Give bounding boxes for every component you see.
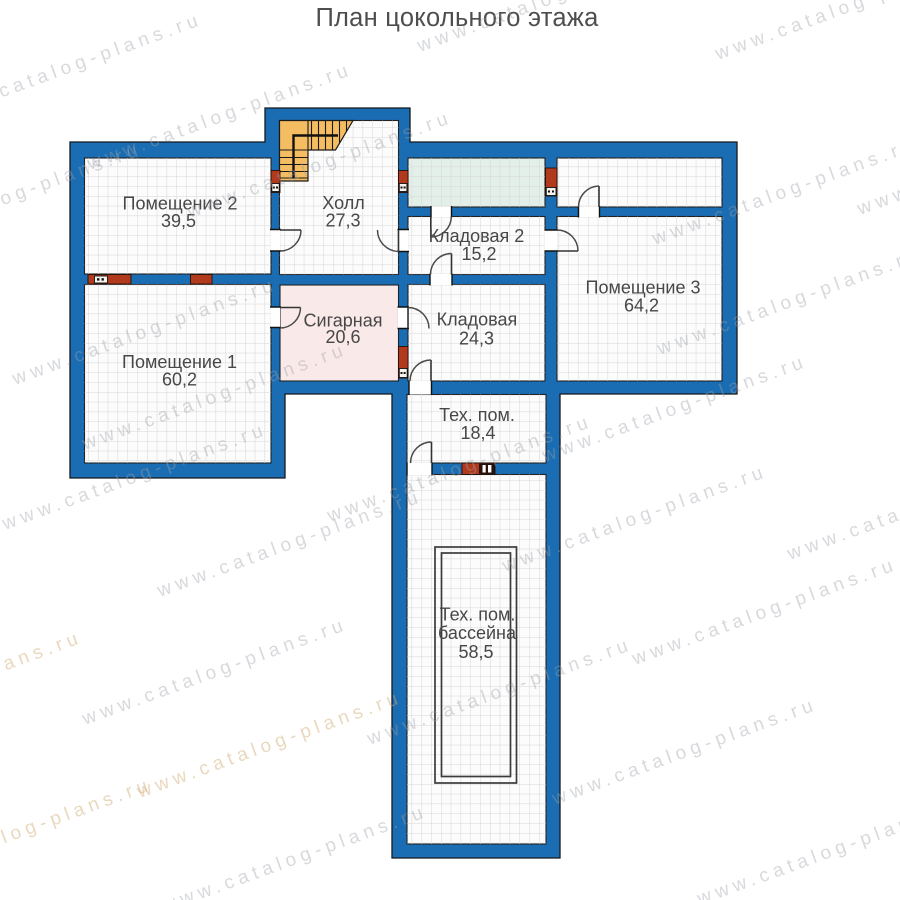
svg-text:Кладовая: Кладовая — [437, 309, 518, 329]
svg-text:15,2: 15,2 — [461, 244, 496, 264]
svg-text:Кладовая 2: Кладовая 2 — [429, 226, 525, 246]
svg-text:www.catalog-plans.ru: www.catalog-plans.ru — [694, 794, 900, 900]
svg-text:www.catalog-plans.ru: www.catalog-plans.ru — [79, 614, 351, 730]
svg-text:www.catalog-plans.ru: www.catalog-plans.ru — [0, 627, 85, 743]
svg-text:www.catalog-plans.ru: www.catalog-plans.ru — [712, 0, 900, 65]
svg-text:24,3: 24,3 — [459, 329, 494, 349]
svg-text:www.catalog-plans.ru: www.catalog-plans.ru — [0, 774, 155, 890]
svg-text:64,2: 64,2 — [624, 296, 659, 316]
svg-text:бассейна: бассейна — [438, 623, 517, 643]
svg-text:Тех. пом.: Тех. пом. — [440, 604, 516, 624]
svg-text:www.catalog-plans.ru: www.catalog-plans.ru — [154, 486, 426, 602]
svg-text:www.catalog-plans.ru: www.catalog-plans.ru — [549, 694, 821, 810]
svg-text:www.catalog-plans.ru: www.catalog-plans.ru — [0, 9, 205, 125]
svg-text:www.catalog-plans.ru: www.catalog-plans.ru — [159, 801, 431, 900]
svg-text:www.catalog-plans.ru: www.catalog-plans.ru — [629, 554, 900, 670]
svg-text:www.catalog-plans.ru: www.catalog-plans.ru — [134, 687, 406, 803]
svg-text:18,4: 18,4 — [460, 423, 495, 443]
svg-text:60,2: 60,2 — [162, 370, 197, 390]
svg-text:Помещение 3: Помещение 3 — [586, 278, 701, 298]
svg-text:27,3: 27,3 — [325, 211, 360, 231]
svg-text:58,5: 58,5 — [458, 642, 493, 662]
svg-text:www.catalog-plans.ru: www.catalog-plans.ru — [784, 449, 900, 565]
